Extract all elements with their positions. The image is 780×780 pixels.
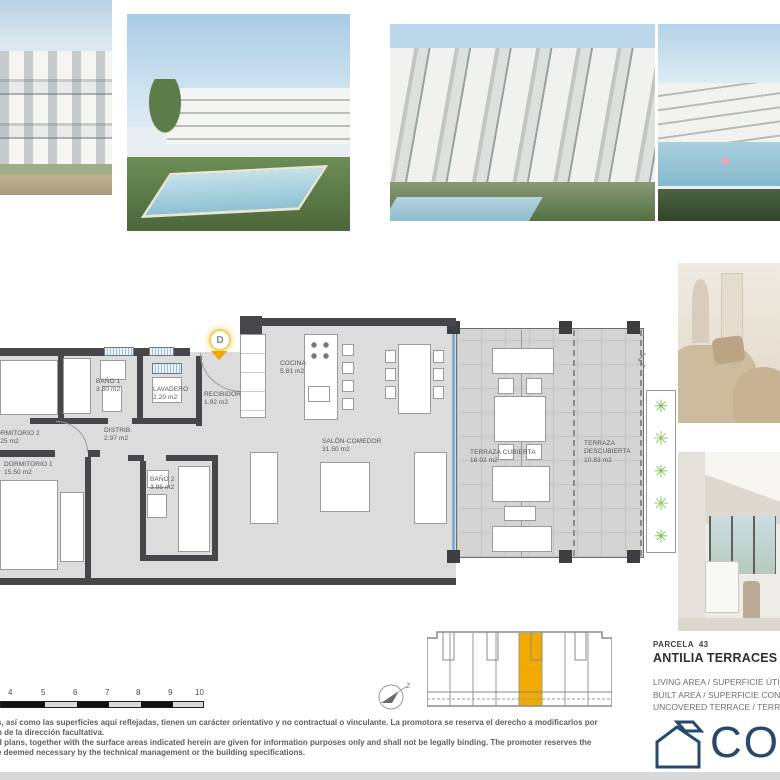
building (167, 88, 350, 144)
dining-table (398, 344, 431, 414)
scale-bar: 4 5 6 7 8 9 10 (0, 688, 215, 710)
partition (212, 461, 218, 561)
stool (342, 362, 354, 374)
terrace-lounger (492, 348, 554, 374)
terrace-divider-dashed (573, 330, 575, 556)
legend-uncovered-terrace: UNCOVERED TERRACE / TERRAZ (653, 701, 780, 714)
disclaimer-line-2: n de la dirección facultativa. (0, 728, 104, 737)
north-arrow-icon (378, 682, 408, 712)
terrace-lounger (492, 526, 552, 552)
palm-tree (136, 79, 194, 157)
chair (433, 368, 444, 381)
room-label-dormitorio1: DORMITORIO 115.50 m2 (4, 461, 53, 478)
photo-living-room (678, 263, 780, 423)
stone-ground (0, 164, 112, 195)
left-wall (678, 452, 705, 631)
key-plan-drawing (427, 626, 612, 710)
wardrobe (60, 492, 84, 562)
stool (342, 398, 354, 410)
plant-icon: ✳ (654, 527, 668, 547)
chair (385, 386, 396, 399)
island (705, 561, 740, 613)
column (447, 550, 460, 563)
partition (137, 356, 143, 420)
terrace-chair (498, 378, 514, 394)
pool (390, 197, 543, 221)
laundry-counter (152, 363, 182, 374)
glass-wall (452, 330, 455, 556)
disclaimer-line-4: e deemed necessary by the technical mana… (0, 748, 305, 757)
developer-logo: CON (650, 718, 780, 770)
legend-built-area: BUILT AREA / SUPERFICIE CONST (653, 689, 780, 702)
coffee-table (320, 462, 370, 512)
cooktop (308, 340, 332, 362)
sink (100, 360, 126, 380)
disclaimer-line-3: d plans, together with the surface areas… (0, 738, 591, 747)
partition (132, 418, 202, 424)
chair (385, 368, 396, 381)
kitchen-cabinet (240, 334, 266, 418)
stool (342, 380, 354, 392)
north-label: z (406, 680, 411, 690)
partition (166, 455, 218, 461)
logo-text: CON (710, 718, 780, 768)
room-label-terraza-cubierta: TERRAZA CUBIERTA18.02 m2 (470, 449, 536, 466)
room-label-recibidor: RECIBIDOR1.92 m2 (204, 391, 241, 408)
photo-pool-flamingo (658, 24, 780, 221)
room-label-salon: SALÓN-COMEDOR31.50 m2 (322, 438, 381, 455)
terrace-daybed (492, 466, 550, 502)
room-label-lavadero: LAVADERO2.20 m2 (153, 386, 188, 403)
bed (0, 480, 58, 570)
chair (433, 386, 444, 399)
scale-tick: 7 (105, 688, 109, 697)
room-label-banio2: BAÑO 23.95 m2 (150, 476, 174, 493)
scale-tick: 4 (8, 688, 12, 697)
planter: ✳ ✳ ✳ ✳ ✳ (646, 390, 676, 553)
photo-pool-garden (127, 14, 350, 231)
toilet (147, 494, 167, 518)
wardrobe (63, 358, 91, 414)
partition (140, 555, 218, 561)
window (149, 347, 174, 356)
terraced-facade (390, 48, 655, 186)
project-title: ANTILIA TERRACES IV (653, 651, 780, 665)
legend-living-area: LIVING AREA / SUPERFICIE ÚTIL I (653, 676, 780, 689)
chair (433, 350, 444, 363)
floor (678, 618, 780, 631)
bed (0, 360, 58, 415)
column (627, 321, 640, 334)
partition (88, 450, 100, 457)
photo-kitchen-dining (678, 452, 780, 631)
scale-tick: 8 (136, 688, 140, 697)
stool (342, 344, 354, 356)
brochure-sheet: ✳ ✳ ✳ ✳ ✳ D (0, 0, 780, 780)
terrace-table (494, 396, 546, 442)
partition (85, 457, 91, 578)
scale-tick: 9 (168, 688, 172, 697)
disclaimer-line-1: s, así como las superficies aquí refleja… (0, 718, 598, 727)
entrance-arrow-icon (211, 351, 227, 360)
sky (0, 0, 112, 55)
kitchen-sink (308, 386, 330, 402)
parcela-label: PARCELA 43 (653, 640, 709, 649)
chair (385, 350, 396, 363)
partition (0, 450, 55, 457)
room-label-cocina: COCINA5.81 m2 (280, 360, 306, 377)
scale-tick: 5 (41, 688, 45, 697)
plant-icon: ✳ (654, 462, 668, 482)
column (627, 550, 640, 563)
photo-building-facade (0, 0, 112, 195)
wall-bottom (0, 578, 456, 585)
entrance-marker: D (209, 329, 231, 351)
plant-icon: ✳ (653, 493, 669, 516)
room-label-banio1: BAÑO 13.30 m2 (96, 378, 120, 395)
exterior-mask-top-left (0, 315, 190, 348)
terrace-chair (526, 378, 542, 394)
scale-bar-strip (0, 701, 204, 708)
building (658, 83, 780, 146)
column (559, 321, 572, 334)
partition (196, 356, 202, 426)
room-label-distrib: DISTRIB.2.97 m2 (104, 427, 132, 444)
sofa (250, 452, 278, 524)
room-label-dormitorio2: DORMITORIO 210.25 m2 (0, 430, 40, 447)
hedge (658, 189, 780, 221)
column (559, 550, 572, 563)
sofa (414, 452, 447, 524)
cushion (711, 335, 745, 365)
partition (140, 461, 146, 561)
window (104, 347, 134, 356)
plant-icon: ✳ (654, 397, 668, 417)
facade-windows (0, 51, 112, 168)
key-plan (427, 626, 612, 710)
plant-icon: ✳ (653, 428, 669, 451)
page-bottom-edge (0, 772, 780, 780)
scale-tick: 10 (195, 688, 204, 697)
photo-building-terraces (390, 24, 655, 221)
room-label-terraza-descubierta: TERRAZA DESCUBIERTA10.83 m2 (584, 440, 636, 465)
stool (743, 581, 759, 620)
legend-block: LIVING AREA / SUPERFICIE ÚTIL I BUILT AR… (653, 676, 780, 714)
terrace-side-table (504, 506, 536, 521)
house-outline-icon (650, 720, 706, 770)
scale-tick: 6 (73, 688, 77, 697)
pool (658, 142, 780, 185)
arch-mirror (692, 279, 708, 343)
wall-top-right (262, 318, 456, 326)
bathtub (178, 466, 210, 552)
sky (658, 24, 780, 91)
